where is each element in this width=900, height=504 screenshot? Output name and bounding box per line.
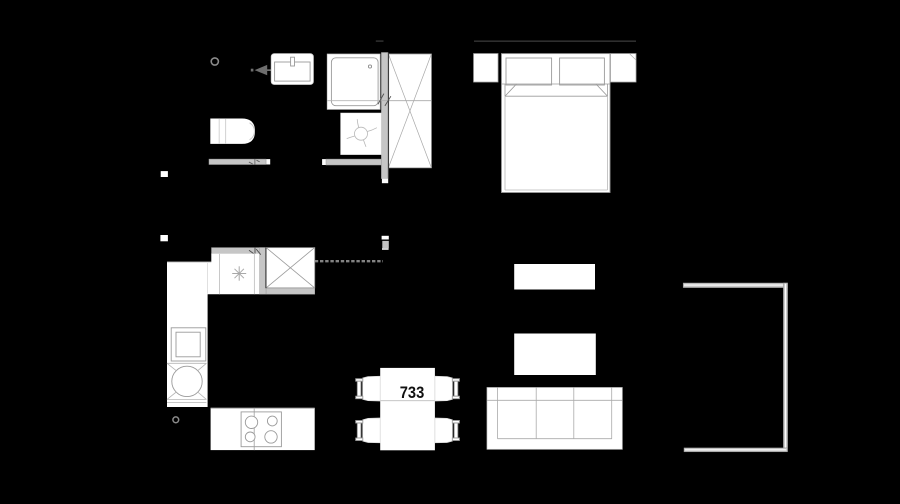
svg-text:733: 733 [400, 384, 425, 402]
